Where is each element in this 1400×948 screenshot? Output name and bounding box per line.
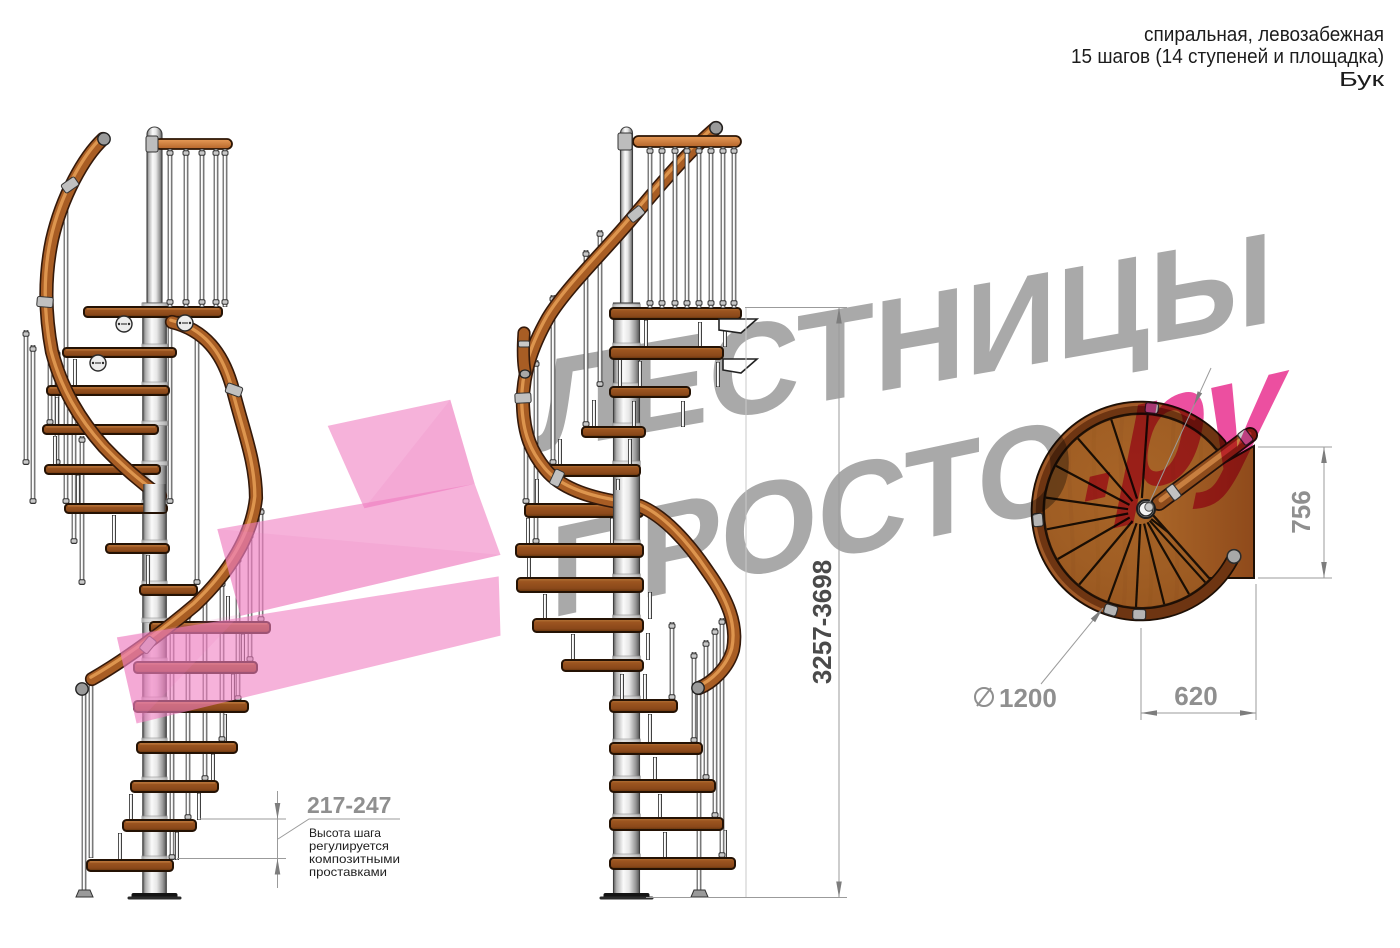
svg-text:756: 756 xyxy=(1286,490,1316,533)
svg-text:спиральная, левозабежная: спиральная, левозабежная xyxy=(1144,24,1384,46)
svg-text:Бук: Бук xyxy=(1339,69,1384,91)
svg-text:3257-3698: 3257-3698 xyxy=(807,560,837,684)
svg-text:217-247: 217-247 xyxy=(307,792,391,818)
svg-text:620: 620 xyxy=(1174,681,1217,711)
svg-text:Высота шага: Высота шага xyxy=(309,826,381,840)
svg-text:1200: 1200 xyxy=(999,683,1057,713)
svg-text:15 шагов (14 ступеней и площад: 15 шагов (14 ступеней и площадка) xyxy=(1071,46,1384,68)
svg-text:регулируется: регулируется xyxy=(309,839,389,853)
svg-text:композитными: композитными xyxy=(309,852,400,866)
svg-text:проставками: проставками xyxy=(309,865,387,879)
